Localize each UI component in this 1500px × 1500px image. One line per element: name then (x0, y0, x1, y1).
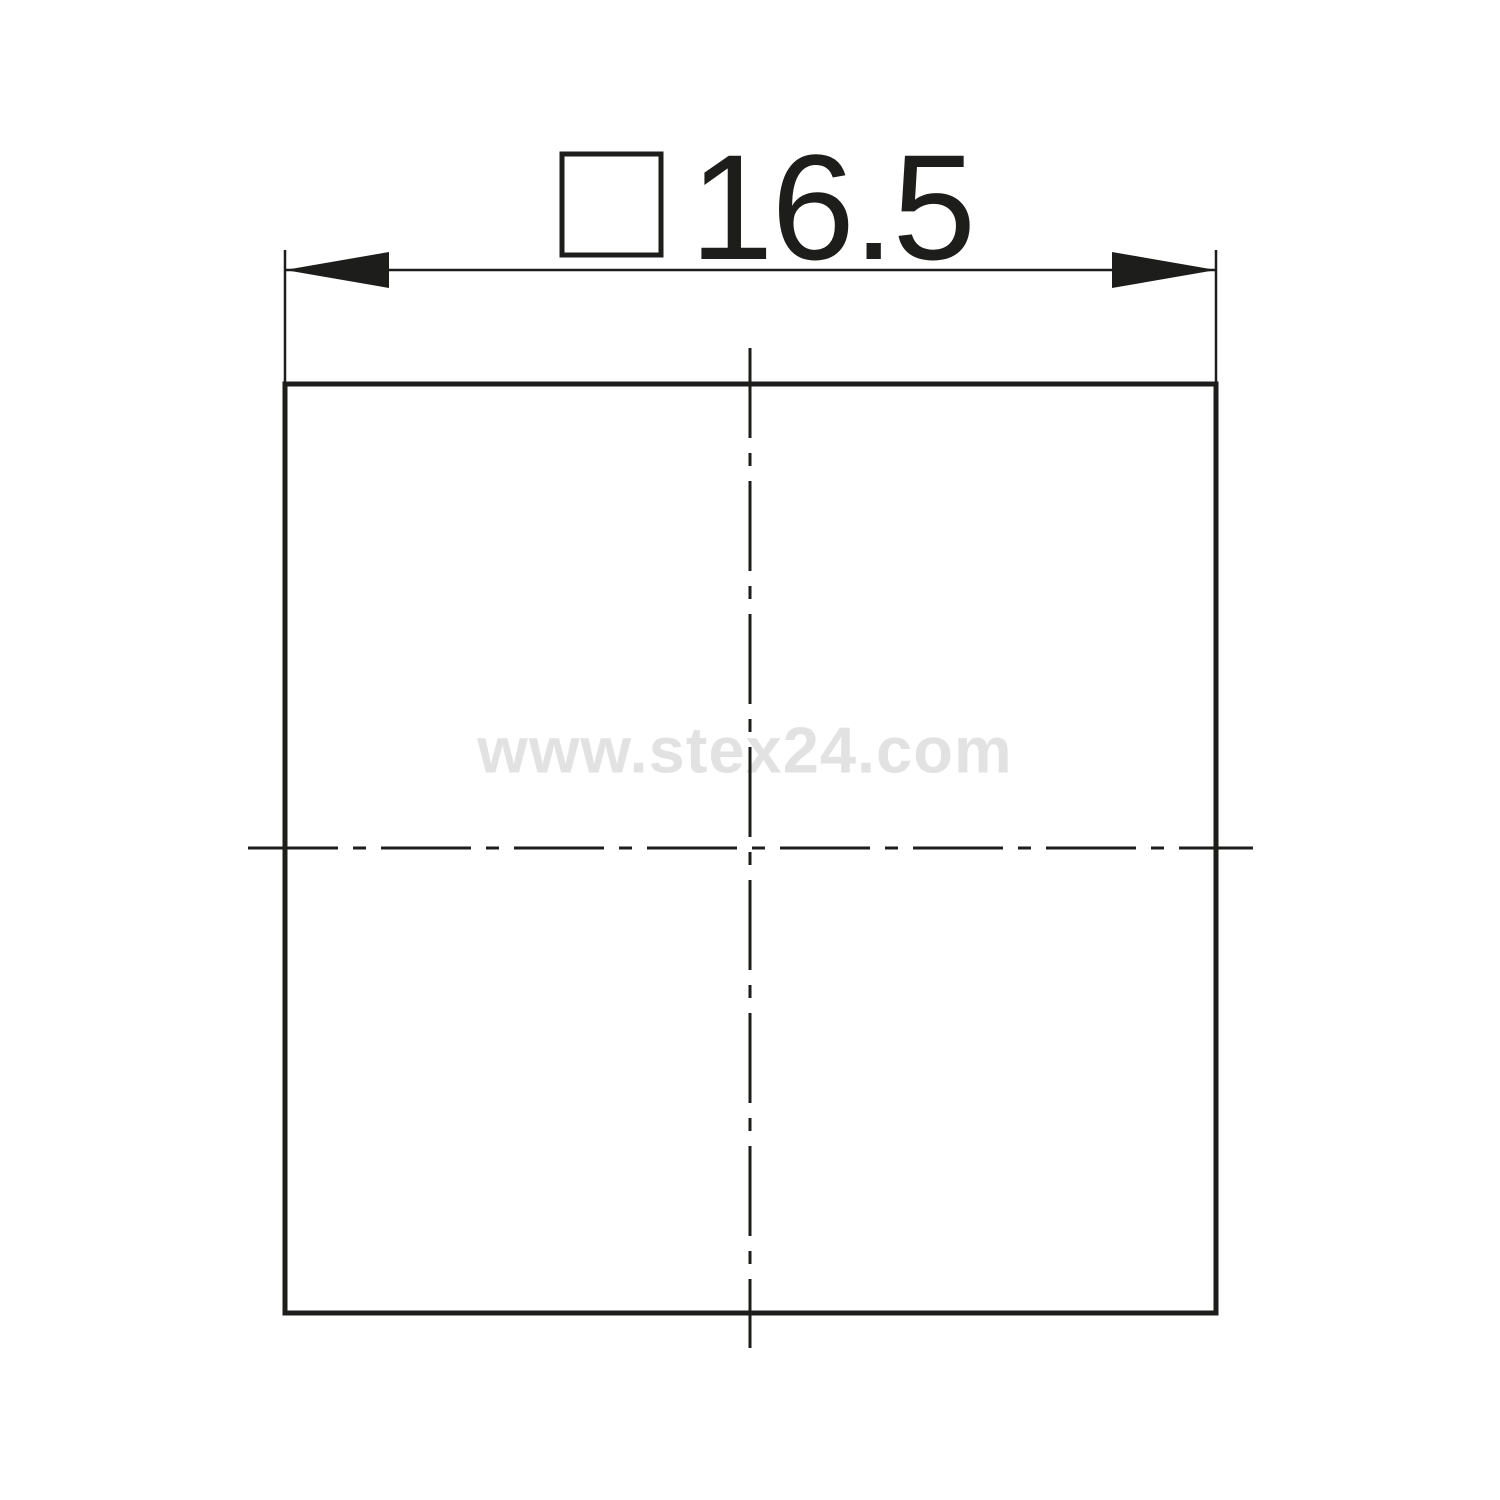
dimension-arrowhead-right-icon (1112, 252, 1216, 288)
dimension-arrowhead-left-icon (285, 252, 389, 288)
dimension-value-label: 16.5 (690, 132, 974, 282)
square-section-symbol-icon (562, 154, 661, 255)
technical-drawing-canvas: www.stex24.com 16.5 (0, 0, 1500, 1500)
